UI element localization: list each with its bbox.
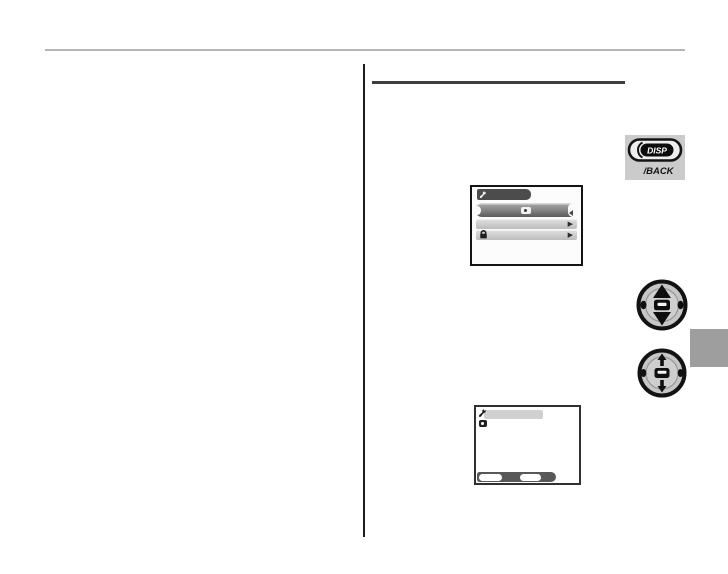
disp-back-button-plate: DISP /BACK [625,135,685,180]
section-heading-underline [372,81,625,84]
camera-back-icon [479,420,487,428]
lock-icon [479,230,488,239]
menu-selected-row [475,203,577,217]
confirm-footer-bar [477,472,556,482]
wrench-icon [479,191,487,199]
menu-row: ▶ [476,230,577,240]
camera-back-icon-lens [481,422,484,425]
menu-row: ▶ [476,219,577,229]
menu-row-arrow-icon: ▶ [568,231,573,240]
page-top-rule [45,49,685,51]
selected-row-left-cap [474,206,481,215]
wrench-icon [478,409,487,418]
menu-row-arrow-icon: ▶ [568,220,573,229]
column-divider [363,64,365,537]
chapter-tab [690,329,728,367]
camera-icon-lens [524,209,527,212]
confirm-screen-title-bar [484,410,543,419]
footer-button [520,474,541,481]
camera-icon [521,207,531,214]
selected-row-right-cap [568,203,578,217]
footer-button [479,474,502,481]
lcd-confirm-screen [474,405,581,485]
selected-row-notch [569,210,573,216]
setup-menu-badge [477,189,531,200]
dpad-menu-ok-icon [637,348,687,398]
back-label: /BACK [642,166,674,177]
dpad-up-down-icon [636,279,688,331]
lcd-setup-menu-screen: ▶ ▶ [470,185,583,266]
disp-back-button-icon: DISP /BACK [627,137,683,178]
manual-page: DISP /BACK ▶ ▶ [0,0,728,574]
disp-label: DISP [647,145,667,155]
